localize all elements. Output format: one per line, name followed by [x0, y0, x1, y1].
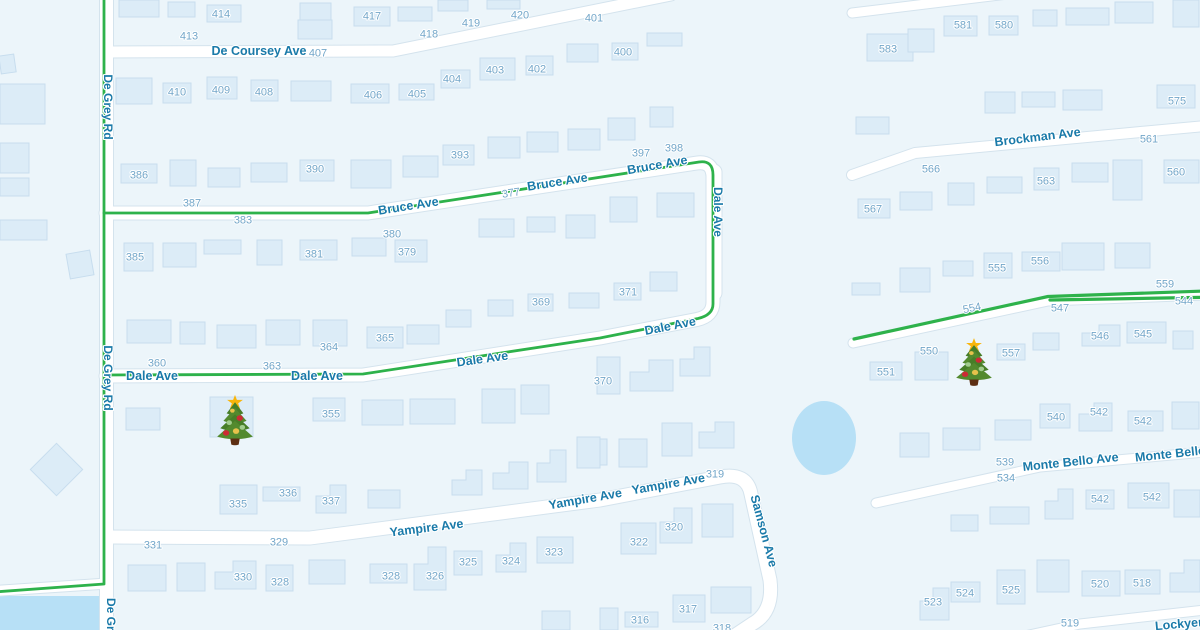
svg-text:547: 547	[1051, 303, 1069, 315]
svg-text:402: 402	[528, 64, 546, 76]
svg-text:404: 404	[443, 74, 461, 86]
svg-text:407: 407	[309, 48, 327, 60]
svg-text:385: 385	[126, 252, 144, 264]
svg-text:381: 381	[305, 249, 323, 261]
svg-text:580: 580	[995, 20, 1013, 32]
svg-text:418: 418	[420, 29, 438, 41]
svg-text:575: 575	[1168, 96, 1186, 108]
svg-text:318: 318	[713, 623, 731, 630]
svg-text:335: 335	[229, 499, 247, 511]
svg-text:563: 563	[1037, 176, 1055, 188]
svg-text:534: 534	[997, 473, 1015, 485]
svg-text:393: 393	[451, 150, 469, 162]
svg-text:329: 329	[270, 537, 288, 549]
svg-text:De Grey Rd: De Grey Rd	[101, 345, 115, 410]
svg-text:555: 555	[988, 263, 1006, 275]
svg-text:322: 322	[630, 537, 648, 549]
svg-text:409: 409	[212, 85, 230, 97]
svg-text:325: 325	[459, 557, 477, 569]
svg-text:De Coursey Ave: De Coursey Ave	[212, 44, 307, 58]
svg-text:559: 559	[1156, 279, 1174, 291]
svg-text:316: 316	[631, 615, 649, 627]
svg-text:546: 546	[1091, 331, 1109, 343]
svg-text:542: 542	[1134, 416, 1152, 428]
svg-text:518: 518	[1133, 578, 1151, 590]
svg-text:561: 561	[1140, 134, 1158, 146]
svg-text:328: 328	[382, 571, 400, 583]
svg-text:336: 336	[279, 488, 297, 500]
svg-text:557: 557	[1002, 348, 1020, 360]
svg-text:414: 414	[212, 9, 230, 21]
svg-text:317: 317	[679, 604, 697, 616]
svg-text:403: 403	[486, 65, 504, 77]
svg-text:365: 365	[376, 333, 394, 345]
svg-text:525: 525	[1002, 585, 1020, 597]
svg-text:583: 583	[879, 44, 897, 56]
svg-text:401: 401	[585, 13, 603, 25]
svg-text:371: 371	[619, 287, 637, 299]
svg-text:324: 324	[502, 556, 520, 568]
svg-text:406: 406	[364, 90, 382, 102]
svg-text:397: 397	[632, 148, 650, 160]
svg-text:417: 417	[363, 11, 381, 23]
svg-text:398: 398	[665, 143, 683, 155]
svg-text:383: 383	[234, 215, 252, 227]
svg-text:337: 337	[322, 496, 340, 508]
svg-text:540: 540	[1047, 412, 1065, 424]
svg-text:544: 544	[1175, 296, 1193, 308]
svg-text:567: 567	[864, 204, 882, 216]
svg-text:581: 581	[954, 20, 972, 32]
svg-text:328: 328	[271, 577, 289, 589]
svg-text:519: 519	[1061, 618, 1079, 630]
svg-text:413: 413	[180, 31, 198, 43]
svg-text:556: 556	[1031, 256, 1049, 268]
svg-text:420: 420	[511, 10, 529, 22]
svg-text:405: 405	[408, 89, 426, 101]
svg-text:355: 355	[322, 409, 340, 421]
svg-text:545: 545	[1134, 329, 1152, 341]
svg-text:379: 379	[398, 247, 416, 259]
svg-text:551: 551	[877, 367, 895, 379]
svg-text:360: 360	[148, 358, 166, 370]
svg-text:542: 542	[1143, 492, 1161, 504]
svg-text:539: 539	[996, 457, 1014, 469]
svg-text:363: 363	[263, 361, 281, 373]
svg-text:523: 523	[924, 597, 942, 609]
svg-text:542: 542	[1090, 407, 1108, 419]
svg-text:319: 319	[706, 469, 724, 481]
svg-text:364: 364	[320, 342, 338, 354]
svg-text:369: 369	[532, 297, 550, 309]
svg-text:386: 386	[130, 170, 148, 182]
svg-text:370: 370	[594, 376, 612, 388]
svg-text:550: 550	[920, 346, 938, 358]
svg-text:520: 520	[1091, 579, 1109, 591]
svg-text:330: 330	[234, 572, 252, 584]
svg-text:400: 400	[614, 47, 632, 59]
svg-text:Dale Ave: Dale Ave	[126, 369, 178, 383]
svg-text:326: 326	[426, 571, 444, 583]
svg-text:408: 408	[255, 87, 273, 99]
svg-text:380: 380	[383, 229, 401, 241]
svg-text:323: 323	[545, 547, 563, 559]
svg-text:Dale Ave: Dale Ave	[291, 369, 343, 383]
svg-text:542: 542	[1091, 494, 1109, 506]
svg-text:331: 331	[144, 540, 162, 552]
svg-text:De Grey: De Grey	[104, 598, 118, 630]
svg-text:390: 390	[306, 164, 324, 176]
svg-text:De Grey Rd: De Grey Rd	[101, 74, 115, 139]
svg-text:387: 387	[183, 198, 201, 210]
svg-text:320: 320	[665, 522, 683, 534]
svg-text:419: 419	[462, 18, 480, 30]
svg-text:410: 410	[168, 87, 186, 99]
svg-text:Dale Ave: Dale Ave	[711, 187, 725, 237]
svg-text:560: 560	[1167, 167, 1185, 179]
svg-text:524: 524	[956, 588, 974, 600]
svg-text:566: 566	[922, 164, 940, 176]
